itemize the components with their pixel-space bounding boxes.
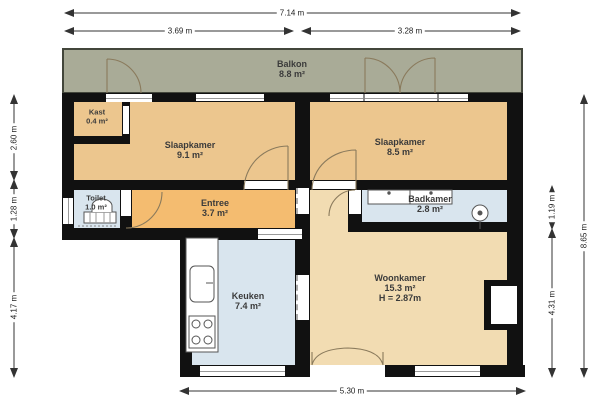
window-woonkamer — [415, 366, 480, 376]
door-gap-slaapkamer-1 — [244, 181, 288, 189]
wall-badkamer-bottom — [348, 222, 507, 232]
label-keuken: Keuken 7.4 m² — [232, 291, 265, 311]
room-name: Slaapkamer — [375, 137, 426, 147]
dim-left-middle: 1.28 m — [10, 194, 19, 224]
french-door-opening — [310, 365, 385, 377]
room-area: 0.4 m² — [86, 117, 108, 126]
room-name: Keuken — [232, 291, 265, 301]
door-opening-entree-keuken — [258, 229, 302, 239]
room-name: Badkamer — [408, 194, 452, 204]
door-gap-slaapkamer-2 — [312, 181, 356, 189]
dim-right-total: 8.65 m — [580, 221, 589, 251]
window-top-left — [196, 94, 264, 101]
door-gap-entree-woonkamer — [296, 188, 309, 214]
dim-top-total: 7.14 m — [277, 9, 307, 18]
label-kast: Kast 0.4 m² — [86, 109, 108, 126]
room-name: Entree — [201, 198, 229, 208]
window-top-right — [330, 94, 468, 101]
dim-top-left: 3.69 m — [165, 27, 195, 36]
label-balkon: Balkon 8.8 m² — [277, 59, 307, 79]
wall-right — [507, 93, 523, 377]
room-area: 8.5 m² — [375, 147, 426, 157]
label-badkamer: Badkamer 2.8 m² — [408, 194, 452, 214]
wall-keuken-left — [180, 228, 192, 377]
dim-right-inner-lower: 4.31 m — [548, 288, 557, 318]
label-slaapkamer-2: Slaapkamer 8.5 m² — [375, 137, 426, 157]
room-area: 9.1 m² — [165, 150, 216, 160]
room-name: Woonkamer — [374, 273, 425, 283]
door-gap-kast — [123, 106, 129, 134]
wall-leftwing-bottom — [62, 228, 192, 240]
balcony-door-opening — [106, 94, 152, 102]
label-woonkamer: Woonkamer 15.3 m² H = 2.87m — [374, 273, 425, 303]
window-toilet — [63, 198, 73, 224]
room-corridor — [310, 190, 348, 232]
room-area: 2.8 m² — [408, 204, 452, 214]
room-area: 7.4 m² — [232, 301, 265, 311]
room-area: 8.8 m² — [277, 69, 307, 79]
wall-kast-bottom — [74, 136, 130, 144]
opening-keuken-woonkamer — [296, 275, 309, 320]
niche-woonkamer — [491, 286, 517, 324]
label-slaapkamer-1: Slaapkamer 9.1 m² — [165, 140, 216, 160]
door-gap-badkamer — [349, 190, 361, 214]
room-name: Balkon — [277, 59, 307, 69]
window-keuken — [200, 366, 285, 376]
room-area: 15.3 m² — [374, 283, 425, 293]
wall-mid-horizontal — [74, 180, 507, 190]
room-ceiling-height: H = 2.87m — [374, 293, 425, 303]
dim-left-lower: 4.17 m — [10, 292, 19, 322]
room-area: 1.0 m² — [85, 203, 107, 212]
dim-left-upper: 2.60 m — [10, 123, 19, 153]
label-entree: Entree 3.7 m² — [201, 198, 229, 218]
dim-right-inner-upper: 1.19 m — [548, 192, 557, 222]
floor-plan: Balkon 8.8 m² Kast 0.4 m² Slaapkamer 9.1… — [0, 0, 600, 400]
dim-top-right: 3.28 m — [395, 27, 425, 36]
room-name: Slaapkamer — [165, 140, 216, 150]
door-gap-toilet — [121, 190, 131, 216]
room-area: 3.7 m² — [201, 208, 229, 218]
dim-bottom: 5.30 m — [337, 387, 367, 396]
label-toilet: Toilet 1.0 m² — [85, 195, 107, 212]
